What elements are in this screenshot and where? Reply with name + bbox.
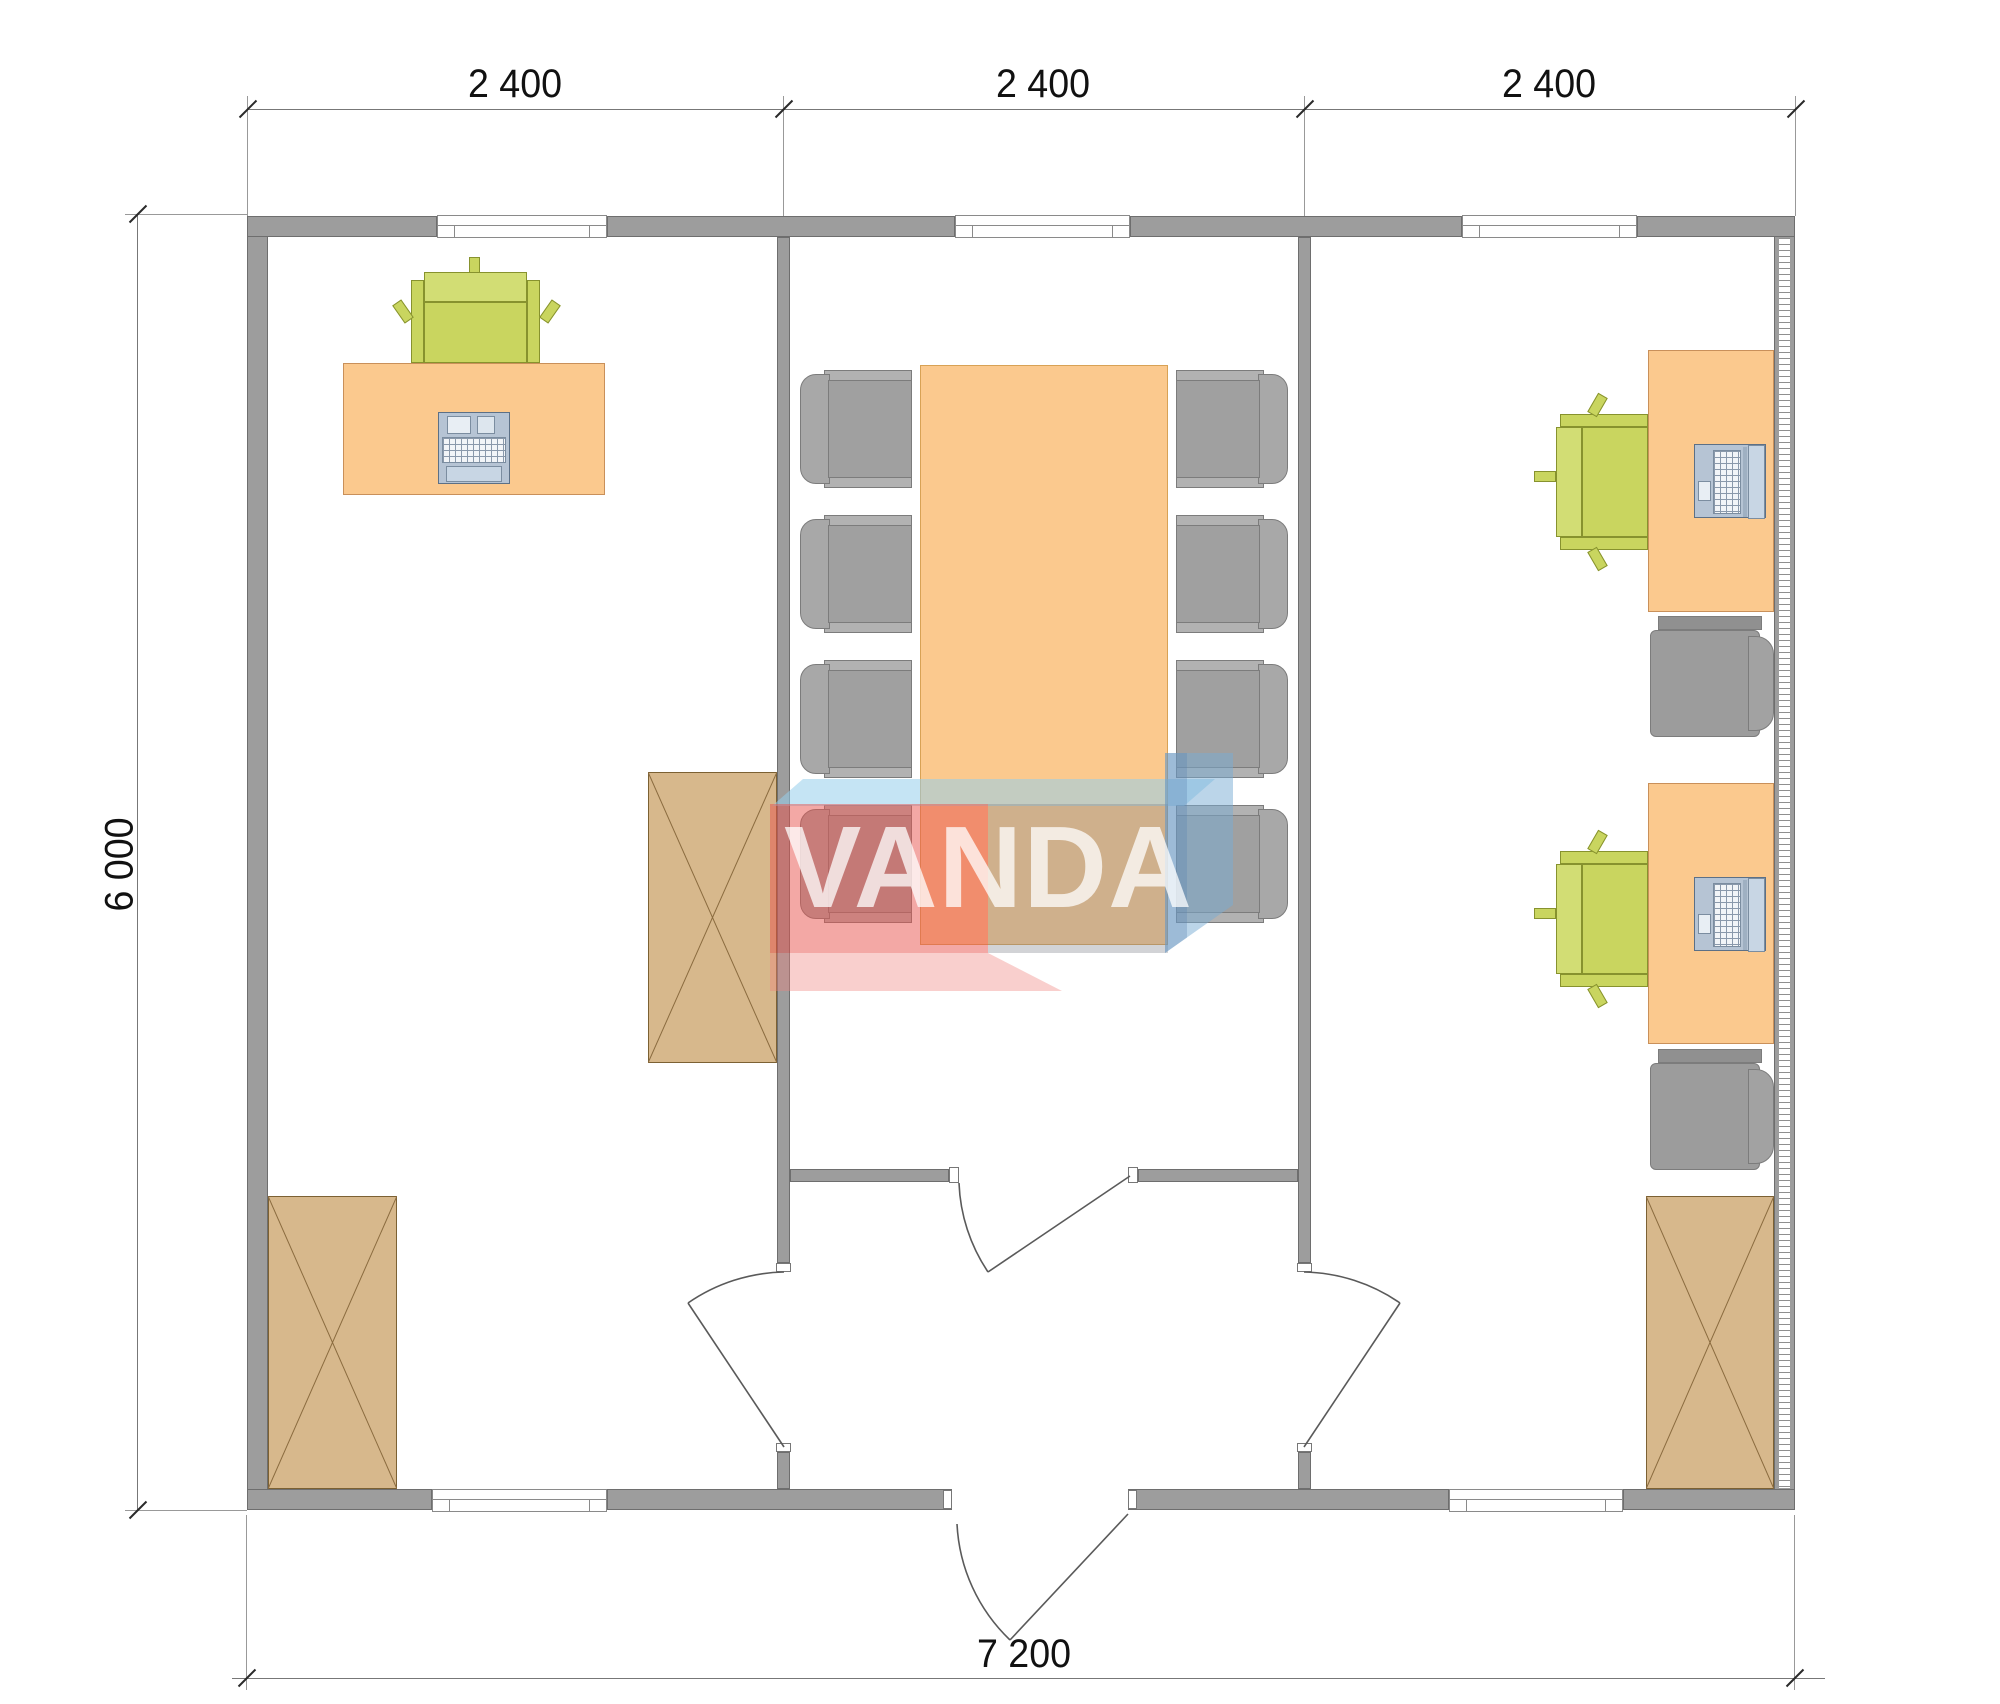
floor-plan-canvas: 2 400 2 400 2 400 6 000 7 200 VANDA [0, 0, 2000, 1704]
door-right-arc [1304, 1272, 1400, 1303]
dim-ext-left-top [125, 214, 247, 215]
dim-label-top-2: 2 400 [973, 62, 1114, 107]
door-right-leaf [1304, 1303, 1400, 1447]
dim-label-top-3: 2 400 [1479, 62, 1620, 107]
dim-ext-top-2 [783, 96, 784, 216]
dim-label-bottom: 7 200 [954, 1632, 1095, 1677]
dim-ext-bottom-2 [1794, 1515, 1795, 1690]
dim-ext-top-1 [247, 96, 248, 216]
door-entrance-arc [957, 1524, 1010, 1640]
dim-line-top [247, 109, 1796, 110]
door-vestibule-arc [959, 1183, 988, 1272]
dim-ext-left-bottom [125, 1510, 247, 1511]
dim-label-top-1: 2 400 [445, 62, 586, 107]
dim-ext-bottom-1 [246, 1515, 247, 1690]
dim-ext-top-4 [1795, 96, 1796, 216]
door-left-leaf [688, 1303, 784, 1447]
watermark-text: VANDA [784, 800, 1193, 934]
door-entrance-leaf [1010, 1514, 1128, 1640]
door-left-arc [688, 1272, 784, 1303]
dim-label-left: 6 000 [98, 794, 143, 935]
dim-ext-top-3 [1304, 96, 1305, 216]
dim-line-bottom [232, 1678, 1825, 1679]
door-vestibule-leaf [988, 1176, 1130, 1272]
